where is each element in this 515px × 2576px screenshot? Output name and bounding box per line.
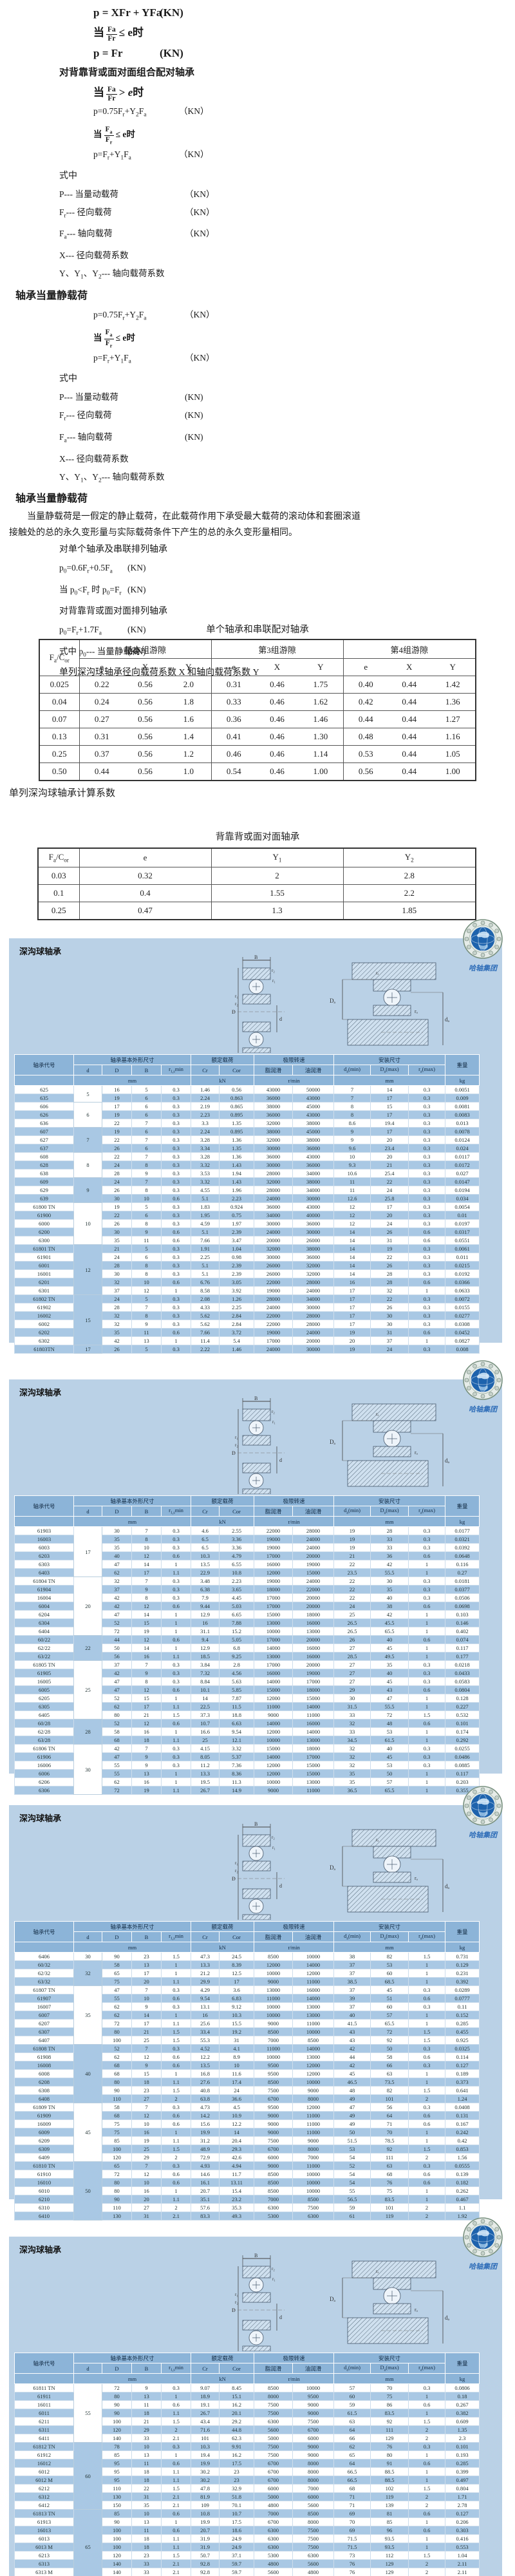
svg-text:D: D xyxy=(232,1876,236,1882)
cell: 0.6 xyxy=(409,2112,445,2120)
bearing-code-cell: 61902 xyxy=(15,1303,74,1312)
table-row: 0.040.240.561.80.330.461.620.420.441.36 xyxy=(39,694,476,711)
cell: 1.1 xyxy=(162,2195,191,2204)
cell: 0.6 xyxy=(162,1228,191,1236)
cell: 11000 xyxy=(293,2128,334,2137)
cell: 8.58 xyxy=(191,1287,220,1295)
svg-text:dₐ: dₐ xyxy=(445,1883,450,1889)
cell: 9.54 xyxy=(220,1728,254,1736)
cell: 31.9 xyxy=(191,2535,220,2543)
formula-line: 当FaFr≤ e时 xyxy=(0,23,515,43)
cell: 1 xyxy=(162,2187,191,2195)
bearing-code-cell: 61907 xyxy=(15,1994,74,2003)
cell: 10.8 xyxy=(191,2510,220,2518)
cell: 60 xyxy=(371,1969,409,1978)
table-row: 0.130.310.561.40.410.461.300.480.441.16 xyxy=(39,728,476,746)
cell: 1 xyxy=(162,2392,191,2401)
cell: 0.0392 xyxy=(445,1544,480,1552)
cell: 0.3 xyxy=(162,1220,191,1228)
cell: 1 xyxy=(409,2476,445,2485)
cell: 2.24 xyxy=(191,1128,220,1136)
bearing-code-cell: 639 xyxy=(15,1195,74,1203)
cell: 7 xyxy=(132,1745,162,1753)
cell: 0.0366 xyxy=(445,1278,480,1287)
cell: 19.4 xyxy=(371,1119,409,1128)
cell: 2.25 xyxy=(191,1253,220,1262)
cell: 0.0583 xyxy=(445,1678,480,1686)
cell: 43 xyxy=(334,2036,371,2045)
cell: 12.5 xyxy=(220,1969,254,1978)
cell: 42.6 xyxy=(220,2154,254,2162)
bearing-code-cell: 6011 xyxy=(15,2409,74,2418)
cell: 100 xyxy=(102,2145,132,2154)
bearing-code-cell: 62/32 xyxy=(15,1969,74,1978)
cell: 0.32 xyxy=(79,867,211,885)
cell: 21 xyxy=(132,2418,162,2426)
cell: 0.3 xyxy=(409,1119,445,1128)
cell: 16000 xyxy=(293,1653,334,1661)
cell: 19000 xyxy=(254,1329,293,1337)
cell: 3.32 xyxy=(191,1161,220,1170)
cell: 19 xyxy=(102,1111,132,1119)
cell: 2.2 xyxy=(343,885,476,902)
cell: 36.5 xyxy=(334,1786,371,1795)
cell: 49 xyxy=(334,2120,371,2128)
cell: 0.3 xyxy=(162,1745,191,1753)
cell: 0.925 xyxy=(445,2036,480,2045)
cell: 1.5 xyxy=(409,2418,445,2426)
cell: 56 xyxy=(102,1653,132,1661)
cell: 0.416 xyxy=(445,2535,480,2543)
cell: 43000 xyxy=(254,1086,293,1094)
cell: 42 xyxy=(102,1745,132,1753)
cell: 37 xyxy=(334,1961,371,1969)
cell: 2.8 xyxy=(343,867,476,885)
cell: 75 xyxy=(102,1978,132,1986)
bearing-code-cell: 16005 xyxy=(15,1678,74,1686)
cell: 28000 xyxy=(254,1170,293,1178)
cell: 0.3 xyxy=(162,1245,191,1253)
cell: 油润滑 xyxy=(293,1506,334,1517)
cell: 7.87 xyxy=(220,1694,254,1703)
cell: 12 xyxy=(334,1220,371,1228)
cell: 额定载荷 xyxy=(191,1496,254,1506)
cell: 9 xyxy=(132,1761,162,1770)
cell: 20000 xyxy=(293,1594,334,1602)
cell: 81 xyxy=(371,2510,409,2518)
cell: 0.0325 xyxy=(445,2045,480,2053)
cell: 24000 xyxy=(254,1228,293,1236)
cell: 7.9 xyxy=(191,1594,220,1602)
bearing-code-cell: 6408 xyxy=(15,2095,74,2103)
cell: 17 xyxy=(132,2020,162,2028)
cell: 0.6 xyxy=(409,2510,445,2518)
cell: 35 xyxy=(132,2501,162,2510)
cell: 26.5 xyxy=(334,1619,371,1627)
cell: 110 xyxy=(102,2204,132,2212)
cell: 1 xyxy=(162,1728,191,1736)
cell: 5.1 xyxy=(191,1195,220,1203)
cell: 0.3 xyxy=(409,2384,445,2392)
cell: 额定载荷 xyxy=(191,1055,254,1065)
cell: 0.3 xyxy=(162,1211,191,1220)
cell: 9.91 xyxy=(220,2443,254,2451)
cell: 0.3 xyxy=(162,1270,191,1278)
cell: Fa/Cor xyxy=(38,848,79,867)
cell: 重量 xyxy=(445,1922,480,1942)
cell: 9000 xyxy=(254,2120,293,2128)
cell: 9 xyxy=(132,2384,162,2392)
bore-diameter-cell: 8 xyxy=(74,1153,102,1178)
cell: 24 xyxy=(102,1161,132,1170)
cell: 0.18 xyxy=(445,2392,480,2401)
cell: r/min xyxy=(254,1075,334,1086)
cell: 12 xyxy=(334,1203,371,1211)
cell: 安装尺寸 xyxy=(334,1922,445,1932)
cell: 47 xyxy=(102,1753,132,1761)
cell: 21 xyxy=(132,1711,162,1719)
cell: 4.93 xyxy=(191,2162,220,2170)
cell: 14000 xyxy=(293,1728,334,1736)
cell: 8000 xyxy=(293,2459,334,2468)
text-line: 式中 xyxy=(0,370,515,388)
cell: 11 xyxy=(132,1329,162,1337)
cell: 0.3 xyxy=(162,1128,191,1136)
cell: 12000 xyxy=(254,1761,293,1770)
cell: 0.530.441.05 xyxy=(343,746,476,763)
bearing-code-cell: 61812 TN xyxy=(15,2443,74,2451)
cell: 110 xyxy=(102,2095,132,2103)
bearing-code-cell: 61908 xyxy=(15,2053,74,2061)
cell: 15000 xyxy=(293,1761,334,1770)
cell: 120 xyxy=(102,2426,132,2434)
cell: 1.1 xyxy=(445,2204,480,2212)
cell: 70 xyxy=(371,2128,409,2137)
bearing-code-cell: 609 xyxy=(15,1178,74,1186)
cell: 40 xyxy=(334,2011,371,2020)
cell: mm xyxy=(334,2374,445,2384)
cell: 0.731 xyxy=(445,1953,480,1961)
cell: 17000 xyxy=(254,1602,293,1611)
bearing-code-cell: 6412 xyxy=(15,2501,74,2510)
svg-text:r₁: r₁ xyxy=(235,1861,238,1866)
cell: 37 xyxy=(102,1661,132,1669)
cell: 12.9 xyxy=(191,1644,220,1653)
cell: 0.025 xyxy=(39,676,79,694)
cell: 额定载荷 xyxy=(191,2353,254,2363)
cell: 22 xyxy=(371,1253,409,1262)
cell: 35.1 xyxy=(191,2195,220,2204)
cell: 12.6 xyxy=(334,1195,371,1203)
cell: 24 xyxy=(334,1602,371,1611)
cell: 10.3 xyxy=(191,1552,220,1560)
cell: 0.863 xyxy=(220,1094,254,1103)
cell: 0.3 xyxy=(409,1086,445,1094)
cell: 0.895 xyxy=(220,1111,254,1119)
cell: 42 xyxy=(102,1669,132,1678)
cell: 26 xyxy=(371,1228,409,1236)
cell: 0.6 xyxy=(409,1228,445,1236)
cell: 55 xyxy=(334,2187,371,2195)
cell: 0.0155 xyxy=(445,1303,480,1312)
cell: 7 xyxy=(132,1136,162,1144)
cell: 21.2 xyxy=(191,1969,220,1978)
cell: 0.0277 xyxy=(445,1312,480,1320)
cell: 0.3 xyxy=(409,2103,445,2112)
cell: 8500 xyxy=(293,2510,334,2518)
cell: 1.1 xyxy=(162,2020,191,2028)
cell: mm xyxy=(74,2374,191,2384)
table-row: 61811 TN557290.39.078.4585001000057700.3… xyxy=(15,2384,480,2392)
cell: 8500 xyxy=(254,2078,293,2087)
cell: 58 xyxy=(102,1728,132,1736)
bore-diameter-cell: 25 xyxy=(74,1661,102,1719)
cell: 26.7 xyxy=(191,1786,220,1795)
bore-diameter-cell: 55 xyxy=(74,2384,102,2443)
cell: 20000 xyxy=(293,1661,334,1669)
cell: 0.0486 xyxy=(445,1753,480,1761)
cell: 24 xyxy=(220,2087,254,2095)
section-title: 深沟球轴承 xyxy=(19,1812,61,1824)
cell: 5.05 xyxy=(220,1636,254,1644)
cell: 3.72 xyxy=(220,1329,254,1337)
cell: 8000 xyxy=(293,2145,334,2154)
cell: 6300 xyxy=(254,2543,293,2552)
cell: 22000 xyxy=(254,1320,293,1329)
cell: 7000 xyxy=(254,2510,293,2518)
cell: 0.3 xyxy=(409,1245,445,1253)
cell: 31.9 xyxy=(191,2543,220,2552)
cell: 14000 xyxy=(254,1753,293,1761)
cell: 0.6 xyxy=(409,2459,445,2468)
cell: 63 xyxy=(371,2162,409,2170)
cell: 90 xyxy=(102,2087,132,2095)
cell: 31.5 xyxy=(334,1703,371,1711)
bearing-code-cell: 61903 xyxy=(15,1527,74,1535)
cell: 70 xyxy=(334,2518,371,2526)
cell: 23 xyxy=(132,2087,162,2095)
cell: 1 xyxy=(162,2518,191,2526)
cell: 22 xyxy=(102,1211,132,1220)
table-row: 62551650.31.460.5643000500007140.30.0051 xyxy=(15,1086,480,1094)
cell: 54 xyxy=(334,2179,371,2187)
cell: 0.410.461.30 xyxy=(211,728,343,746)
cell: 15000 xyxy=(254,1611,293,1619)
cell: 32000 xyxy=(254,1119,293,1128)
cell: 0.220.562.0 xyxy=(79,676,211,694)
cell: 2.1 xyxy=(162,2568,191,2576)
cell: 0.3 xyxy=(409,2003,445,2011)
cell: 轴承代号 xyxy=(15,1055,74,1075)
cell: 30000 xyxy=(254,1144,293,1153)
cell: Cr xyxy=(191,1506,220,1517)
cell: 1.36 xyxy=(220,1136,254,1144)
cell: 2.25 xyxy=(220,1303,254,1312)
cell: 18 xyxy=(132,2543,162,2552)
cell: 极限转速 xyxy=(254,2353,334,2363)
cell: 脂润滑 xyxy=(254,1065,293,1075)
cell: 6.76 xyxy=(191,1278,220,1287)
cell: 25.4 xyxy=(371,1170,409,1178)
cell: 16000 xyxy=(254,1560,293,1569)
bearing-code-cell: 61803TN xyxy=(15,1345,74,1354)
unit-label: (KN) xyxy=(185,388,203,406)
svg-text:Dₐ: Dₐ xyxy=(330,998,335,1004)
cell: 0.460.461.14 xyxy=(211,746,343,763)
cell: 8000 xyxy=(293,2095,334,2103)
cell: 0.3 xyxy=(162,1170,191,1178)
cell: 59.7 xyxy=(220,2560,254,2568)
cell: 油润滑 xyxy=(293,1932,334,1942)
company-logo: 哈轴集团 xyxy=(460,2217,506,2271)
cell: 80 xyxy=(102,2187,132,2195)
cell: 18000 xyxy=(293,1611,334,1619)
cell: 0.480.441.16 xyxy=(343,728,476,746)
bearing-code-cell: 61804 TN xyxy=(15,1577,74,1586)
cell: 52 xyxy=(102,1719,132,1728)
cell: Fa/Cor xyxy=(39,639,79,676)
cell: 14 xyxy=(334,1228,371,1236)
cell: 50000 xyxy=(293,1086,334,1094)
cell: 22 xyxy=(132,2485,162,2493)
cell: 45 xyxy=(371,1986,409,1994)
cell: 38000 xyxy=(254,1128,293,1136)
cell: 9000 xyxy=(293,2409,334,2418)
bearing-code-cell: 61806 TN xyxy=(15,1745,74,1753)
cell: 0.3 xyxy=(409,1270,445,1278)
bore-diameter-cell: 6 xyxy=(74,1103,102,1128)
cell: 36000 xyxy=(293,1161,334,1170)
cell: 1.1 xyxy=(162,1786,191,1795)
bearing-section: 深沟球轴承哈轴集团Br₂r₁r₁r₂DdDₐrₐrₐdₐ轴承代号轴承基本外形尺寸… xyxy=(0,2237,515,2576)
cell: 0.3 xyxy=(409,1586,445,1594)
bearing-code-cell: 6008 xyxy=(15,2070,74,2078)
unit-label: (KN) xyxy=(185,428,203,446)
svg-text:r₁: r₁ xyxy=(272,2277,276,2282)
cell: 0.6 xyxy=(409,1278,445,1287)
cell: 19 xyxy=(132,2137,162,2145)
cell: 4.73 xyxy=(191,2103,220,2112)
company-logo-icon xyxy=(463,919,503,959)
cell: 0.3 xyxy=(409,1303,445,1312)
cell: 65 xyxy=(334,2451,371,2459)
cell: 9500 xyxy=(254,2103,293,2112)
cell: 42 xyxy=(371,1611,409,1619)
cell: 0.3 xyxy=(162,1678,191,1686)
unit-label: （KN） xyxy=(179,146,209,164)
cell: 41.5 xyxy=(334,2020,371,2028)
svg-text:r₁: r₁ xyxy=(235,2292,238,2297)
bearing-code-cell: 606 xyxy=(15,1103,74,1111)
cell: 5300 xyxy=(254,2212,293,2221)
cell: kg xyxy=(445,1942,480,1953)
cell: 76 xyxy=(334,2560,371,2568)
cell: 0.0452 xyxy=(445,1329,480,1337)
cell: 1.55 xyxy=(211,885,343,902)
cell: 安装尺寸 xyxy=(334,1055,445,1065)
cell: 32 xyxy=(102,1278,132,1287)
bearing-code-cell: 635 xyxy=(15,1094,74,1103)
cell: 22 xyxy=(102,1153,132,1161)
cell: 33 xyxy=(132,2434,162,2443)
bearing-code-cell: 6007 xyxy=(15,2011,74,2020)
cell: 20 xyxy=(334,1337,371,1345)
bearing-section: 深沟球轴承哈轴集团Br₂r₁r₁r₂DdDₐrₐrₐdₐ轴承代号轴承基本外形尺寸… xyxy=(0,1805,515,2199)
table-row: 61806 TN304270.34.153.32150001800032400.… xyxy=(15,1745,480,1753)
bearing-code-cell: 629 xyxy=(15,1186,74,1195)
cell: 17 xyxy=(334,1303,371,1312)
cell: 0.3 xyxy=(409,1195,445,1203)
cell: 40000 xyxy=(293,1211,334,1220)
cell: e xyxy=(79,848,211,867)
bearing-code-cell: 6409 xyxy=(15,2154,74,2162)
cell: 0.3 xyxy=(409,1312,445,1320)
cell: 1 xyxy=(409,1653,445,1661)
cell: 12 xyxy=(132,1287,162,1295)
cell: 3.32 xyxy=(191,1178,220,1186)
cell: 30000 xyxy=(293,1228,334,1236)
cell: 62.3 xyxy=(220,2434,254,2443)
cell: 35 xyxy=(371,1661,409,1669)
cell: 80 xyxy=(102,2078,132,2087)
cell: 30.2 xyxy=(191,2468,220,2476)
cell: 68 xyxy=(371,2170,409,2179)
cell: 14 xyxy=(371,1086,409,1094)
cell: 54 xyxy=(334,2170,371,2179)
cell: 47 xyxy=(102,1560,132,1569)
cell: 0.6 xyxy=(162,2170,191,2179)
cell: 22 xyxy=(334,1577,371,1586)
cell: 17000 xyxy=(254,1636,293,1644)
text-line: X--- 径向载荷系数 xyxy=(0,450,515,468)
cell: 9.4 xyxy=(191,1636,220,1644)
section-title: 深沟球轴承 xyxy=(19,945,61,957)
bearing-code-cell: 16006 xyxy=(15,1761,74,1770)
cell: 1.56 xyxy=(445,2154,480,2162)
cell: 26 xyxy=(102,1345,132,1354)
cell: 1.46 xyxy=(220,1345,254,1354)
cell: 19.9 xyxy=(191,2459,220,2468)
bearing-code-cell: 61910 xyxy=(15,2170,74,2179)
cell: 0.285 xyxy=(445,2020,480,2028)
cell: 1.46 xyxy=(191,1086,220,1094)
cell: 0.0081 xyxy=(445,1103,480,1111)
cell: 13000 xyxy=(254,1619,293,1627)
cell: 71 xyxy=(334,2493,371,2501)
cell: 82 xyxy=(371,1953,409,1961)
cell: 63.8 xyxy=(191,2095,220,2103)
cell: ra(max) xyxy=(409,1065,445,1075)
cell: 2.19 xyxy=(191,1103,220,1111)
cell: 0.103 xyxy=(445,1611,480,1619)
cell: 66 xyxy=(371,2061,409,2070)
cell: 6 xyxy=(132,1103,162,1111)
cell: 119 xyxy=(371,2493,409,2501)
cell: 3.32 xyxy=(220,1745,254,1753)
cell: 15000 xyxy=(293,1770,334,1778)
table-header-row: 轴承代号轴承基本外形尺寸额定载荷极限转速安装尺寸重量 xyxy=(15,1496,480,1506)
cell: 81.9 xyxy=(191,2493,220,2501)
cell: 2 xyxy=(162,2426,191,2434)
cell: 7500 xyxy=(293,2535,334,2543)
cell: 6300 xyxy=(254,2418,293,2426)
cell: 75 xyxy=(102,2120,132,2128)
cell: 0.227 xyxy=(445,1703,480,1711)
cell: 1 xyxy=(409,2011,445,2020)
cell: 36000 xyxy=(293,1253,334,1262)
cell: 0.0377 xyxy=(445,1586,480,1594)
cell: 安装尺寸 xyxy=(334,1496,445,1506)
